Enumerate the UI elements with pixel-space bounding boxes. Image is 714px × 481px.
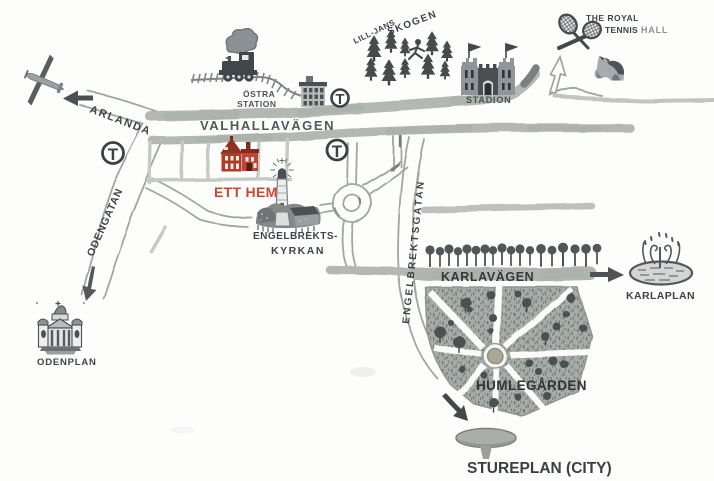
- svg-text:ENGELBREKTS-: ENGELBREKTS-: [253, 231, 338, 242]
- svg-text:ÖSTRA: ÖSTRA: [243, 89, 275, 99]
- svg-text:ENGELBREKTSGATAN: ENGELBREKTSGATAN: [401, 179, 427, 324]
- svg-text:STUREPLAN (CITY): STUREPLAN (CITY): [467, 460, 612, 477]
- svg-text:KYRKAN: KYRKAN: [271, 245, 325, 257]
- svg-text:ETT HEM: ETT HEM: [214, 184, 278, 200]
- svg-text:T: T: [332, 142, 343, 161]
- svg-text:KARLAPLAN: KARLAPLAN: [626, 290, 695, 302]
- svg-text:HALL: HALL: [641, 25, 668, 35]
- svg-text:TENNIS: TENNIS: [605, 25, 638, 35]
- svg-text:ARLANDA: ARLANDA: [88, 104, 153, 138]
- svg-text:VALHALLAVÄGEN: VALHALLAVÄGEN: [200, 118, 335, 133]
- svg-text:STADION: STADION: [466, 95, 511, 105]
- svg-text:HUMLEGÅRDEN: HUMLEGÅRDEN: [476, 378, 587, 393]
- svg-text:THE ROYAL: THE ROYAL: [586, 13, 639, 23]
- svg-text:ODENPLAN: ODENPLAN: [37, 357, 97, 368]
- svg-text:T: T: [108, 145, 119, 164]
- svg-text:T: T: [335, 91, 344, 108]
- svg-text:KARLAVÄGEN: KARLAVÄGEN: [441, 269, 534, 284]
- svg-text:STATION: STATION: [237, 99, 277, 109]
